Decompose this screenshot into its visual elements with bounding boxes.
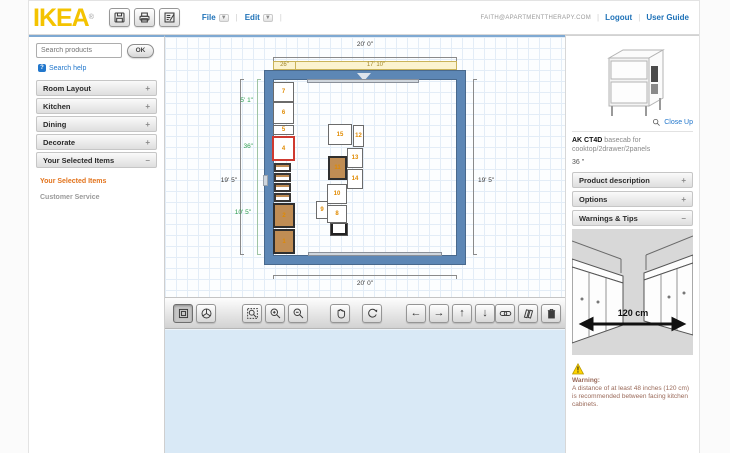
link-icon [499,307,512,320]
zoom-out-button[interactable] [288,304,308,323]
plan-item-window [308,252,442,256]
menu-edit[interactable]: Edit▼ [245,13,273,22]
selected-items-links: Your Selected ItemsCustomer Service [36,170,157,201]
zoom-fit-icon [246,307,259,320]
product-image [572,36,693,116]
plan-item-7[interactable]: 7 [273,82,294,102]
expand-icon: + [681,195,686,204]
menu-bar: File▼|Edit▼| [202,13,285,22]
search-input[interactable] [36,43,122,58]
plan-item-sink[interactable] [330,223,348,236]
divider: | [597,13,599,22]
item-number: 9 [320,207,323,213]
move-up-icon: ↑ [459,307,465,319]
section-decorate[interactable]: Decorate+ [36,134,157,150]
move-up-button[interactable]: ↑ [452,304,472,323]
search-help-link[interactable]: ? Search help [38,64,157,72]
warning-diagram: 120 cm [572,229,693,360]
item-number: 12 [355,133,362,139]
dim-top-total: 20' 0" [265,41,465,48]
section-dining[interactable]: Dining+ [36,116,157,132]
rotate-icon [366,307,379,320]
plan-item-2[interactable]: 2 [273,203,295,228]
zoom-out-icon [292,307,305,320]
close-up-link[interactable]: Close Up [572,118,693,127]
expand-icon: – [682,214,686,223]
section-your-selected-items[interactable]: Your Selected Items– [36,152,157,168]
product-accordion: Product description+Options+Warnings & T… [572,172,693,226]
move-down-icon: ↓ [482,307,488,319]
item-number: 15 [337,132,344,138]
registered-mark: ® [89,14,93,21]
section-label: Warnings & Tips [579,214,638,223]
dim-line-left [240,79,244,255]
header: IKEA® File▼|Edit▼| FAITH@APARTMENTTHERAP… [29,1,699,35]
logout-link[interactable]: Logout [605,13,632,22]
toolbar-group [242,304,308,323]
view-2d-button[interactable] [173,304,193,323]
item-number: 4 [282,146,285,152]
plan-item-4[interactable]: 4 [272,136,295,161]
pan-button[interactable] [330,304,350,323]
help-icon: ? [38,64,46,72]
toolbar-group [173,304,216,323]
print-icon [138,11,151,24]
expand-icon: + [145,102,150,111]
delete-button[interactable] [541,304,561,323]
section-label: Decorate [43,138,75,147]
pan-icon [334,307,347,320]
user-guide-link[interactable]: User Guide [646,13,689,22]
divider: | [638,13,640,22]
plan-item-12[interactable]: 12 [353,125,364,147]
plan-item-5[interactable]: 5 [273,125,294,135]
product-code: AK CT4D [572,137,602,144]
sidebar: OK ? Search help Room Layout+Kitchen+Din… [29,35,165,453]
section-label: Kitchen [43,102,71,111]
save-button[interactable] [109,8,130,27]
menu-file[interactable]: File▼ [202,13,229,22]
plan-item-15[interactable]: 15 [328,124,352,145]
svg-text:!: ! [577,366,580,375]
lower-canvas-area[interactable] [165,329,565,453]
plan-item-drawer[interactable] [274,173,291,182]
section-label: Product description [579,176,650,185]
expand-icon: + [681,176,686,185]
item-number: 13 [352,155,359,161]
zoom-in-button[interactable] [265,304,285,323]
toolbar-group [495,304,561,323]
dim-left-total: 19' 5" [211,177,237,184]
item-number: 8 [335,211,338,217]
item-list-button[interactable] [159,8,180,27]
sidebar-accordion: Room Layout+Kitchen+Dining+Decorate+Your… [36,80,157,168]
item-number: 14 [352,176,359,182]
user-email: FAITH@APARTMENTTHERAPY.COM [480,15,591,21]
expand-icon: + [145,84,150,93]
chevron-down-icon: ▼ [219,14,229,22]
item-number: 5 [282,127,285,133]
section-label: Dining [43,120,66,129]
expand-icon: – [146,156,150,165]
product-title: AK CT4D basecab for cooktop/2drawer/2pan… [572,131,693,154]
plan-item-13[interactable]: 13 [347,148,363,168]
toolbar-group [330,304,350,323]
plan-item-1[interactable]: 1 [273,229,295,254]
print-button[interactable] [134,8,155,27]
dim-left-seg2: 36" [231,143,253,150]
view-3d-button[interactable] [196,304,216,323]
plan-item-6[interactable]: 6 [273,102,294,124]
toolbar-group [362,304,382,323]
account-bar: FAITH@APARTMENTTHERAPY.COM | Logout | Us… [480,13,689,22]
section-label: Room Layout [43,84,91,93]
view-3d-icon [200,307,213,320]
item-number: 11 [334,165,340,171]
item-number: 6 [282,110,285,116]
catalog-icon [522,307,535,320]
product-panel: Close Up AK CT4D basecab for cooktop/2dr… [565,35,699,453]
plan-item-drawer[interactable] [274,193,291,202]
dim-left-seg1: 5' 1" [229,97,253,104]
wall-fixture [263,175,268,186]
plan-item-window [307,79,419,83]
section-room-layout[interactable]: Room Layout+ [36,80,157,96]
divider: | [280,13,282,22]
kitchen-planner-app: IKEA® File▼|Edit▼| FAITH@APARTMENTTHERAP… [28,0,700,453]
section-kitchen[interactable]: Kitchen+ [36,98,157,114]
move-down-button[interactable]: ↓ [475,304,495,323]
plan-item-14[interactable]: 14 [347,169,363,189]
view-toolbar: ←→↑↓ [165,297,565,329]
chevron-down-icon: ▼ [263,14,273,22]
canvas-column: 26" 17' 10" 20' 0" 5' 1" 36" 19' 5" 10' … [165,35,565,453]
item-number: 10 [334,191,341,197]
view-2d-icon [177,307,190,320]
room-walls [265,71,465,264]
product-size: 36 " [572,159,693,166]
menu-label: Edit [245,13,260,22]
move-left-icon: ← [411,307,422,319]
plan-item-10[interactable]: 10 [327,184,347,204]
dim-line-bottom [273,275,457,279]
move-right-button[interactable]: → [429,304,449,323]
warning-text: Warning: A distance of at least 48 inche… [572,377,690,409]
divider: | [236,13,238,22]
svg-text:120 cm: 120 cm [618,308,649,318]
link-button[interactable] [495,304,515,323]
catalog-button[interactable] [518,304,538,323]
dim-segment: 17' 10" [295,61,457,70]
link-your-selected-items[interactable]: Your Selected Items [40,178,157,185]
save-icon [113,11,126,24]
plan-item-drawer[interactable] [274,163,291,172]
zoom-in-icon [269,307,282,320]
dim-line-left-segments [257,79,261,255]
item-number: 2 [282,213,285,219]
search-ok-button[interactable]: OK [127,44,154,58]
delete-icon [545,307,558,320]
dim-left-seg3: 10' 5" [225,209,251,216]
move-right-icon: → [434,307,445,319]
item-number: 1 [282,239,285,245]
dim-line-right [473,79,477,255]
header-toolbar [109,8,180,27]
dim-segment: 26" [273,61,296,70]
item-list-icon [163,11,176,24]
section-options[interactable]: Options+ [572,191,693,207]
rotate-button[interactable] [362,304,382,323]
menu-label: File [202,13,216,22]
plan-item-drawer[interactable] [274,183,291,192]
section-label: Options [579,195,607,204]
expand-icon: + [145,138,150,147]
zoom-fit-button[interactable] [242,304,262,323]
expand-icon: + [145,120,150,129]
plan-item-8[interactable]: 8 [327,205,347,223]
floor-plan-canvas[interactable]: 26" 17' 10" 20' 0" 5' 1" 36" 19' 5" 10' … [165,37,565,297]
warning-block: ! Warning: A distance of at least 48 inc… [572,363,693,409]
section-product-description[interactable]: Product description+ [572,172,693,188]
ikea-logo: IKEA® [33,3,93,33]
item-number: 7 [282,89,285,95]
move-left-button[interactable]: ← [406,304,426,323]
warning-icon: ! [572,363,584,375]
section-warnings-tips[interactable]: Warnings & Tips– [572,210,693,226]
section-label: Your Selected Items [43,156,114,165]
toolbar-group: ←→↑↓ [406,304,495,323]
magnifier-icon [652,118,661,127]
dim-band-top: 26" 17' 10" [273,61,457,70]
link-customer-service[interactable]: Customer Service [40,194,157,201]
plan-item-11[interactable]: 11 [328,156,347,180]
dim-bottom-total: 20' 0" [265,280,465,287]
dim-right-total: 19' 5" [478,177,494,184]
